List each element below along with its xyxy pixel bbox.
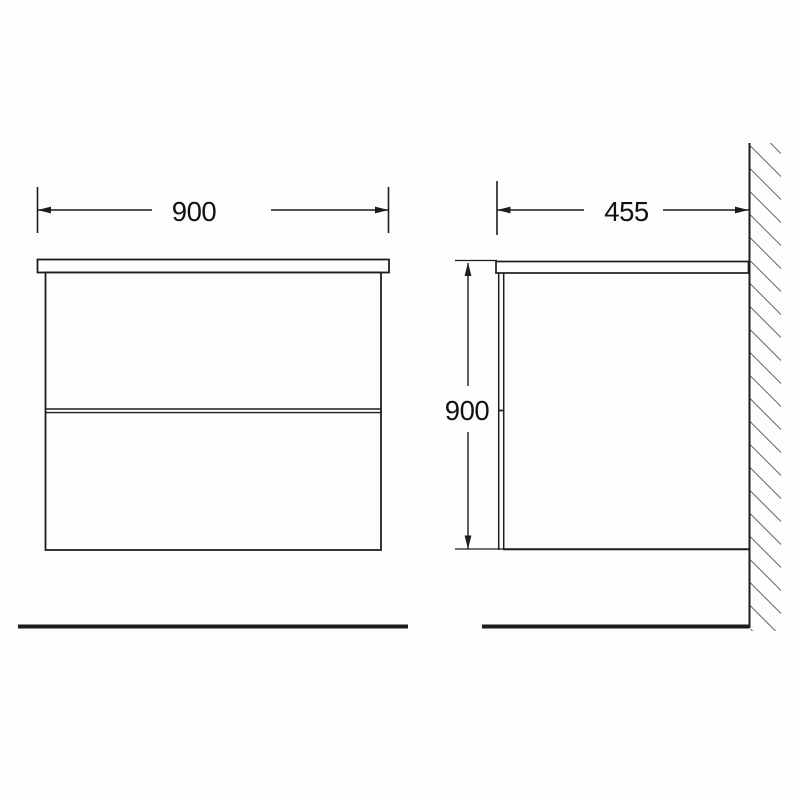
wall [750, 143, 782, 631]
front-countertop [38, 260, 390, 273]
front-view: 900 [38, 187, 390, 550]
front-cabinet-body [46, 273, 382, 551]
side-depth-label: 455 [604, 196, 649, 227]
side-view: 455 900 [445, 181, 749, 550]
side-height-dimension: 900 [445, 261, 505, 550]
drawing-svg: 900 455 900 [0, 0, 800, 800]
side-height-label: 900 [445, 395, 490, 426]
side-depth-dimension: 455 [497, 181, 749, 235]
arrowhead-up-icon [465, 263, 472, 277]
arrowhead-left-icon [38, 207, 52, 214]
cabinet-technical-drawing: 900 455 900 [0, 0, 800, 800]
front-width-dimension: 900 [38, 187, 389, 233]
arrowhead-right-icon [735, 207, 749, 214]
side-countertop [496, 262, 749, 274]
arrowhead-right-icon [375, 207, 389, 214]
arrowhead-left-icon [497, 207, 511, 214]
front-width-label: 900 [172, 196, 217, 227]
wall-hatching [751, 143, 782, 631]
arrowhead-down-icon [465, 536, 472, 550]
